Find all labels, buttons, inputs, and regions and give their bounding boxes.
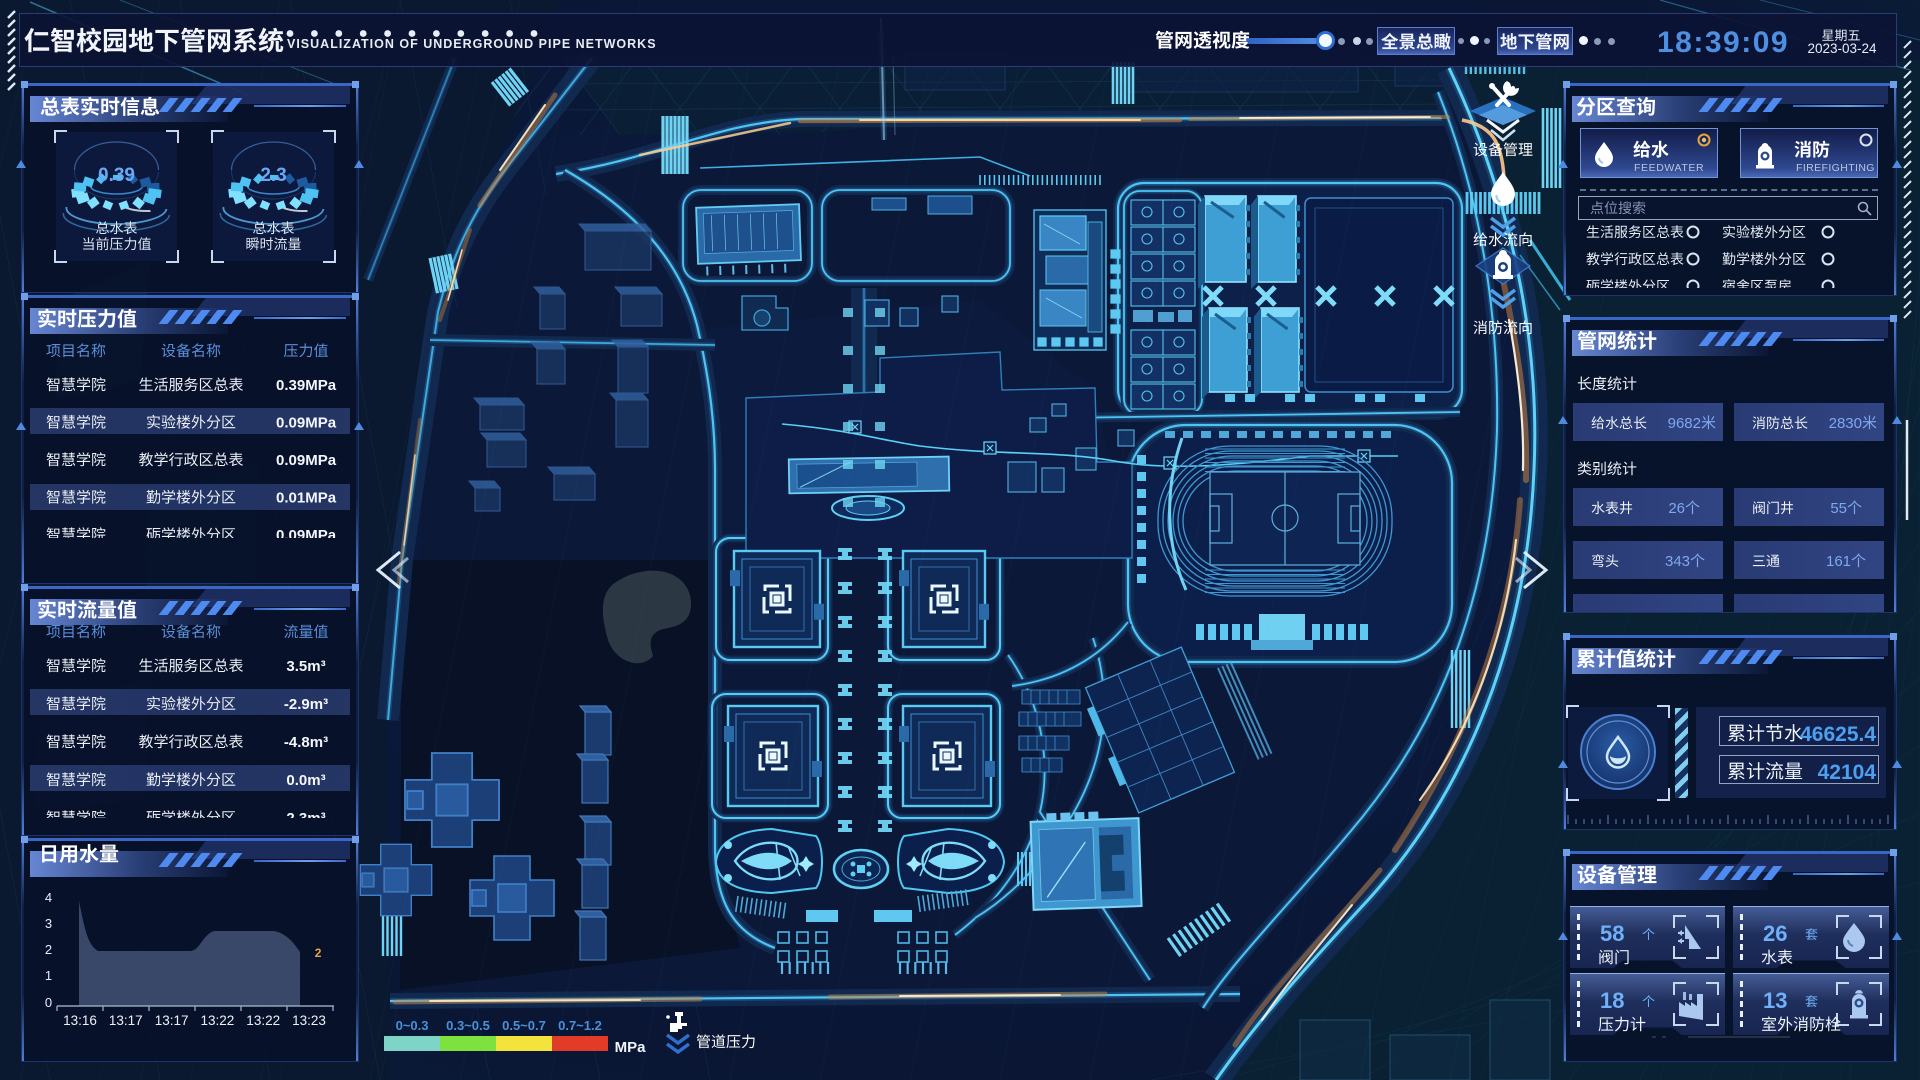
svg-text:3: 3 (45, 916, 52, 931)
svg-text:3.5m³: 3.5m³ (286, 658, 325, 675)
svg-text:0.39MPa: 0.39MPa (276, 377, 337, 394)
svg-text:13:17: 13:17 (109, 1013, 143, 1028)
svg-text:343: 343 (1665, 553, 1690, 570)
svg-text:46625.4: 46625.4 (1800, 723, 1876, 746)
svg-text:13:22: 13:22 (246, 1013, 280, 1028)
svg-text:VISUALIZATION OF UNDERGROUND P: VISUALIZATION OF UNDERGROUND PIPE NETWOR… (287, 37, 657, 51)
svg-text:58: 58 (1600, 921, 1624, 946)
svg-text:18:39:09: 18:39:09 (1657, 26, 1789, 59)
svg-text:26: 26 (1763, 921, 1787, 946)
svg-text:0.09MPa: 0.09MPa (276, 452, 337, 469)
svg-text:0.39: 0.39 (98, 165, 135, 186)
svg-text:4: 4 (45, 890, 52, 905)
svg-text:FEEDWATER: FEEDWATER (1634, 162, 1704, 174)
svg-text:13:17: 13:17 (155, 1013, 189, 1028)
svg-text:13: 13 (1763, 988, 1787, 1013)
svg-text:0.7~1.2: 0.7~1.2 (558, 1018, 602, 1033)
svg-text:-2.9m³: -2.9m³ (284, 696, 328, 713)
svg-text:2.3: 2.3 (260, 165, 286, 186)
svg-text:2: 2 (315, 946, 322, 960)
svg-text:0.09MPa: 0.09MPa (276, 415, 337, 432)
svg-text:18: 18 (1600, 988, 1624, 1013)
svg-text:2: 2 (45, 942, 52, 957)
svg-text:161: 161 (1826, 553, 1851, 570)
svg-text:0.0m³: 0.0m³ (286, 772, 325, 789)
svg-text:2830: 2830 (1829, 415, 1862, 432)
svg-text:0: 0 (45, 995, 52, 1010)
svg-text:42104: 42104 (1818, 761, 1877, 784)
svg-text:2023-03-24: 2023-03-24 (1808, 41, 1878, 56)
svg-text:0.5~0.7: 0.5~0.7 (502, 1018, 546, 1033)
svg-text:13:16: 13:16 (63, 1013, 97, 1028)
svg-text:0.09MPa: 0.09MPa (276, 527, 337, 544)
svg-text:0~0.3: 0~0.3 (396, 1018, 429, 1033)
svg-text:55: 55 (1830, 500, 1847, 517)
svg-text:0.3~0.5: 0.3~0.5 (446, 1018, 490, 1033)
svg-text:FIREFIGHTING: FIREFIGHTING (1796, 162, 1875, 174)
svg-text:MPa: MPa (615, 1039, 647, 1056)
svg-text:13:23: 13:23 (292, 1013, 326, 1028)
svg-text:13:22: 13:22 (201, 1013, 235, 1028)
svg-text:9682: 9682 (1668, 415, 1701, 432)
svg-text:0.01MPa: 0.01MPa (276, 490, 337, 507)
svg-text:2.3m³: 2.3m³ (286, 810, 325, 827)
svg-text:1: 1 (45, 968, 52, 983)
svg-text:-4.8m³: -4.8m³ (284, 734, 328, 751)
svg-text:26: 26 (1668, 500, 1685, 517)
